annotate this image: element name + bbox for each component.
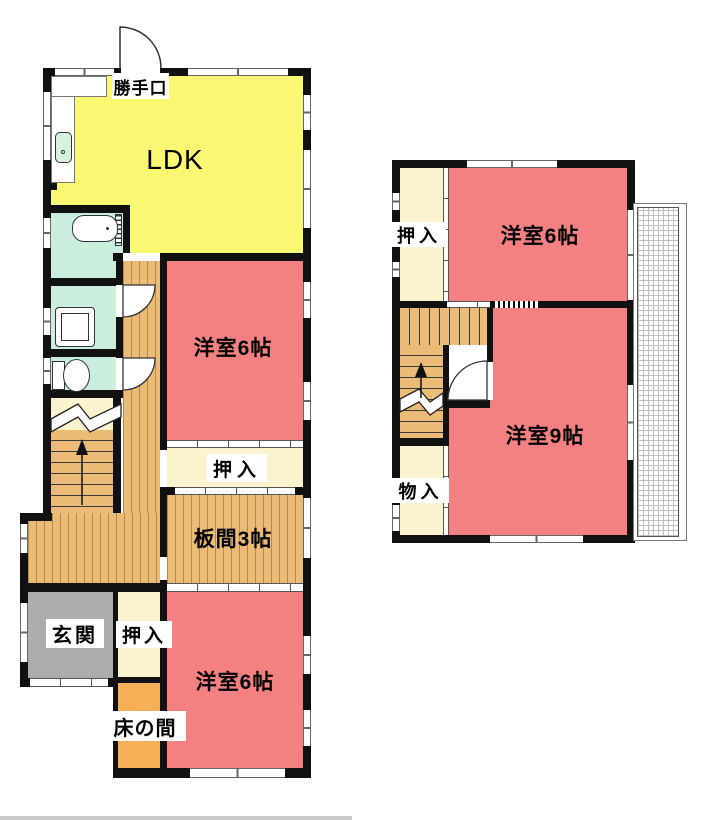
window: [303, 95, 311, 130]
window: [43, 92, 51, 160]
sliding-door: [167, 583, 303, 592]
door-opening: [487, 362, 493, 400]
wall-stair-right: [113, 398, 121, 513]
kitchen-door-arc: [120, 27, 161, 68]
floor-plan-canvas: 勝手口 LDK 洋室6帖 押入 板間3帖 玄関 押入 床の間 洋室6帖 押入 洋…: [0, 0, 703, 820]
window: [43, 308, 51, 335]
bottom-strip: [0, 816, 352, 820]
wall-stair-divider: [443, 345, 449, 446]
door-opening: [116, 285, 123, 317]
door-opening: [160, 557, 167, 580]
wall-room-left: [160, 592, 167, 768]
bathtub-drain-icon: [106, 227, 109, 230]
stair-landing-1f: [51, 398, 113, 430]
window: [303, 282, 311, 318]
wall-toilet-bottom: [43, 390, 123, 398]
window: [188, 68, 288, 76]
window: [392, 193, 400, 210]
label-oshiire-2f: 押入: [392, 222, 446, 247]
washer-pan-inner-icon: [61, 313, 89, 341]
window: [20, 603, 28, 662]
label-oshiire-lower: 押入: [116, 621, 172, 648]
window: [303, 382, 311, 420]
sliding-door: [175, 487, 295, 495]
label-yoshitsu6-lower: 洋室6帖: [172, 667, 298, 695]
label-tokonoma: 床の間: [104, 711, 186, 741]
window: [20, 524, 28, 553]
window: [490, 535, 583, 543]
staircase-2f-upper: [400, 308, 487, 345]
staircase-2f-run: [400, 345, 443, 438]
door-opening: [116, 358, 123, 390]
door-opening: [123, 253, 160, 261]
window: [467, 160, 557, 168]
label-ldk: LDK: [140, 142, 210, 178]
wall-under-stairs: [392, 438, 449, 446]
window: [55, 68, 114, 76]
entrance-door: [30, 678, 108, 687]
wall-bathroom-top: [43, 205, 130, 213]
bathtub-icon: [72, 215, 118, 242]
kitchen-counter: [51, 76, 107, 97]
wall-stair-right: [487, 308, 493, 362]
label-oshiire-mid: 押入: [207, 454, 267, 482]
label-katteguchi: 勝手口: [112, 73, 169, 99]
window: [43, 358, 51, 384]
window: [303, 498, 311, 558]
wall-genkan-top: [20, 583, 167, 592]
stair-landing-2f: [449, 345, 487, 400]
corridor-flooring: [123, 261, 160, 513]
toilet-bowl-icon: [63, 359, 90, 392]
window: [303, 710, 311, 746]
wall-under-landing: [448, 400, 490, 408]
window: [303, 636, 311, 674]
door-opening: [447, 301, 490, 308]
window: [190, 768, 285, 778]
window: [43, 218, 51, 248]
label-yoshitsu6-2f: 洋室6帖: [477, 221, 603, 249]
window: [392, 505, 400, 531]
label-itanoma: 板間3帖: [170, 524, 296, 552]
hall-flooring: [28, 513, 163, 583]
wall-washroom-top: [43, 278, 123, 286]
balcony: [637, 207, 679, 537]
sink-drain-icon: [61, 150, 65, 154]
label-genkan: 玄関: [46, 619, 104, 648]
label-yoshitsu6-mid: 洋室6帖: [170, 333, 296, 361]
wall-hatch-mark: [493, 301, 538, 308]
fusuma-door: [167, 440, 303, 448]
window: [392, 262, 400, 277]
wall-step: [20, 513, 52, 521]
door-opening: [160, 450, 167, 487]
label-yoshitsu9-2f: 洋室9帖: [482, 421, 608, 449]
staircase-1f: [51, 430, 113, 513]
window: [303, 150, 311, 228]
wall-washroom-toilet: [43, 349, 123, 357]
kitchen-sink-icon: [55, 132, 72, 163]
label-mononyu-2f: 物入: [392, 478, 449, 503]
